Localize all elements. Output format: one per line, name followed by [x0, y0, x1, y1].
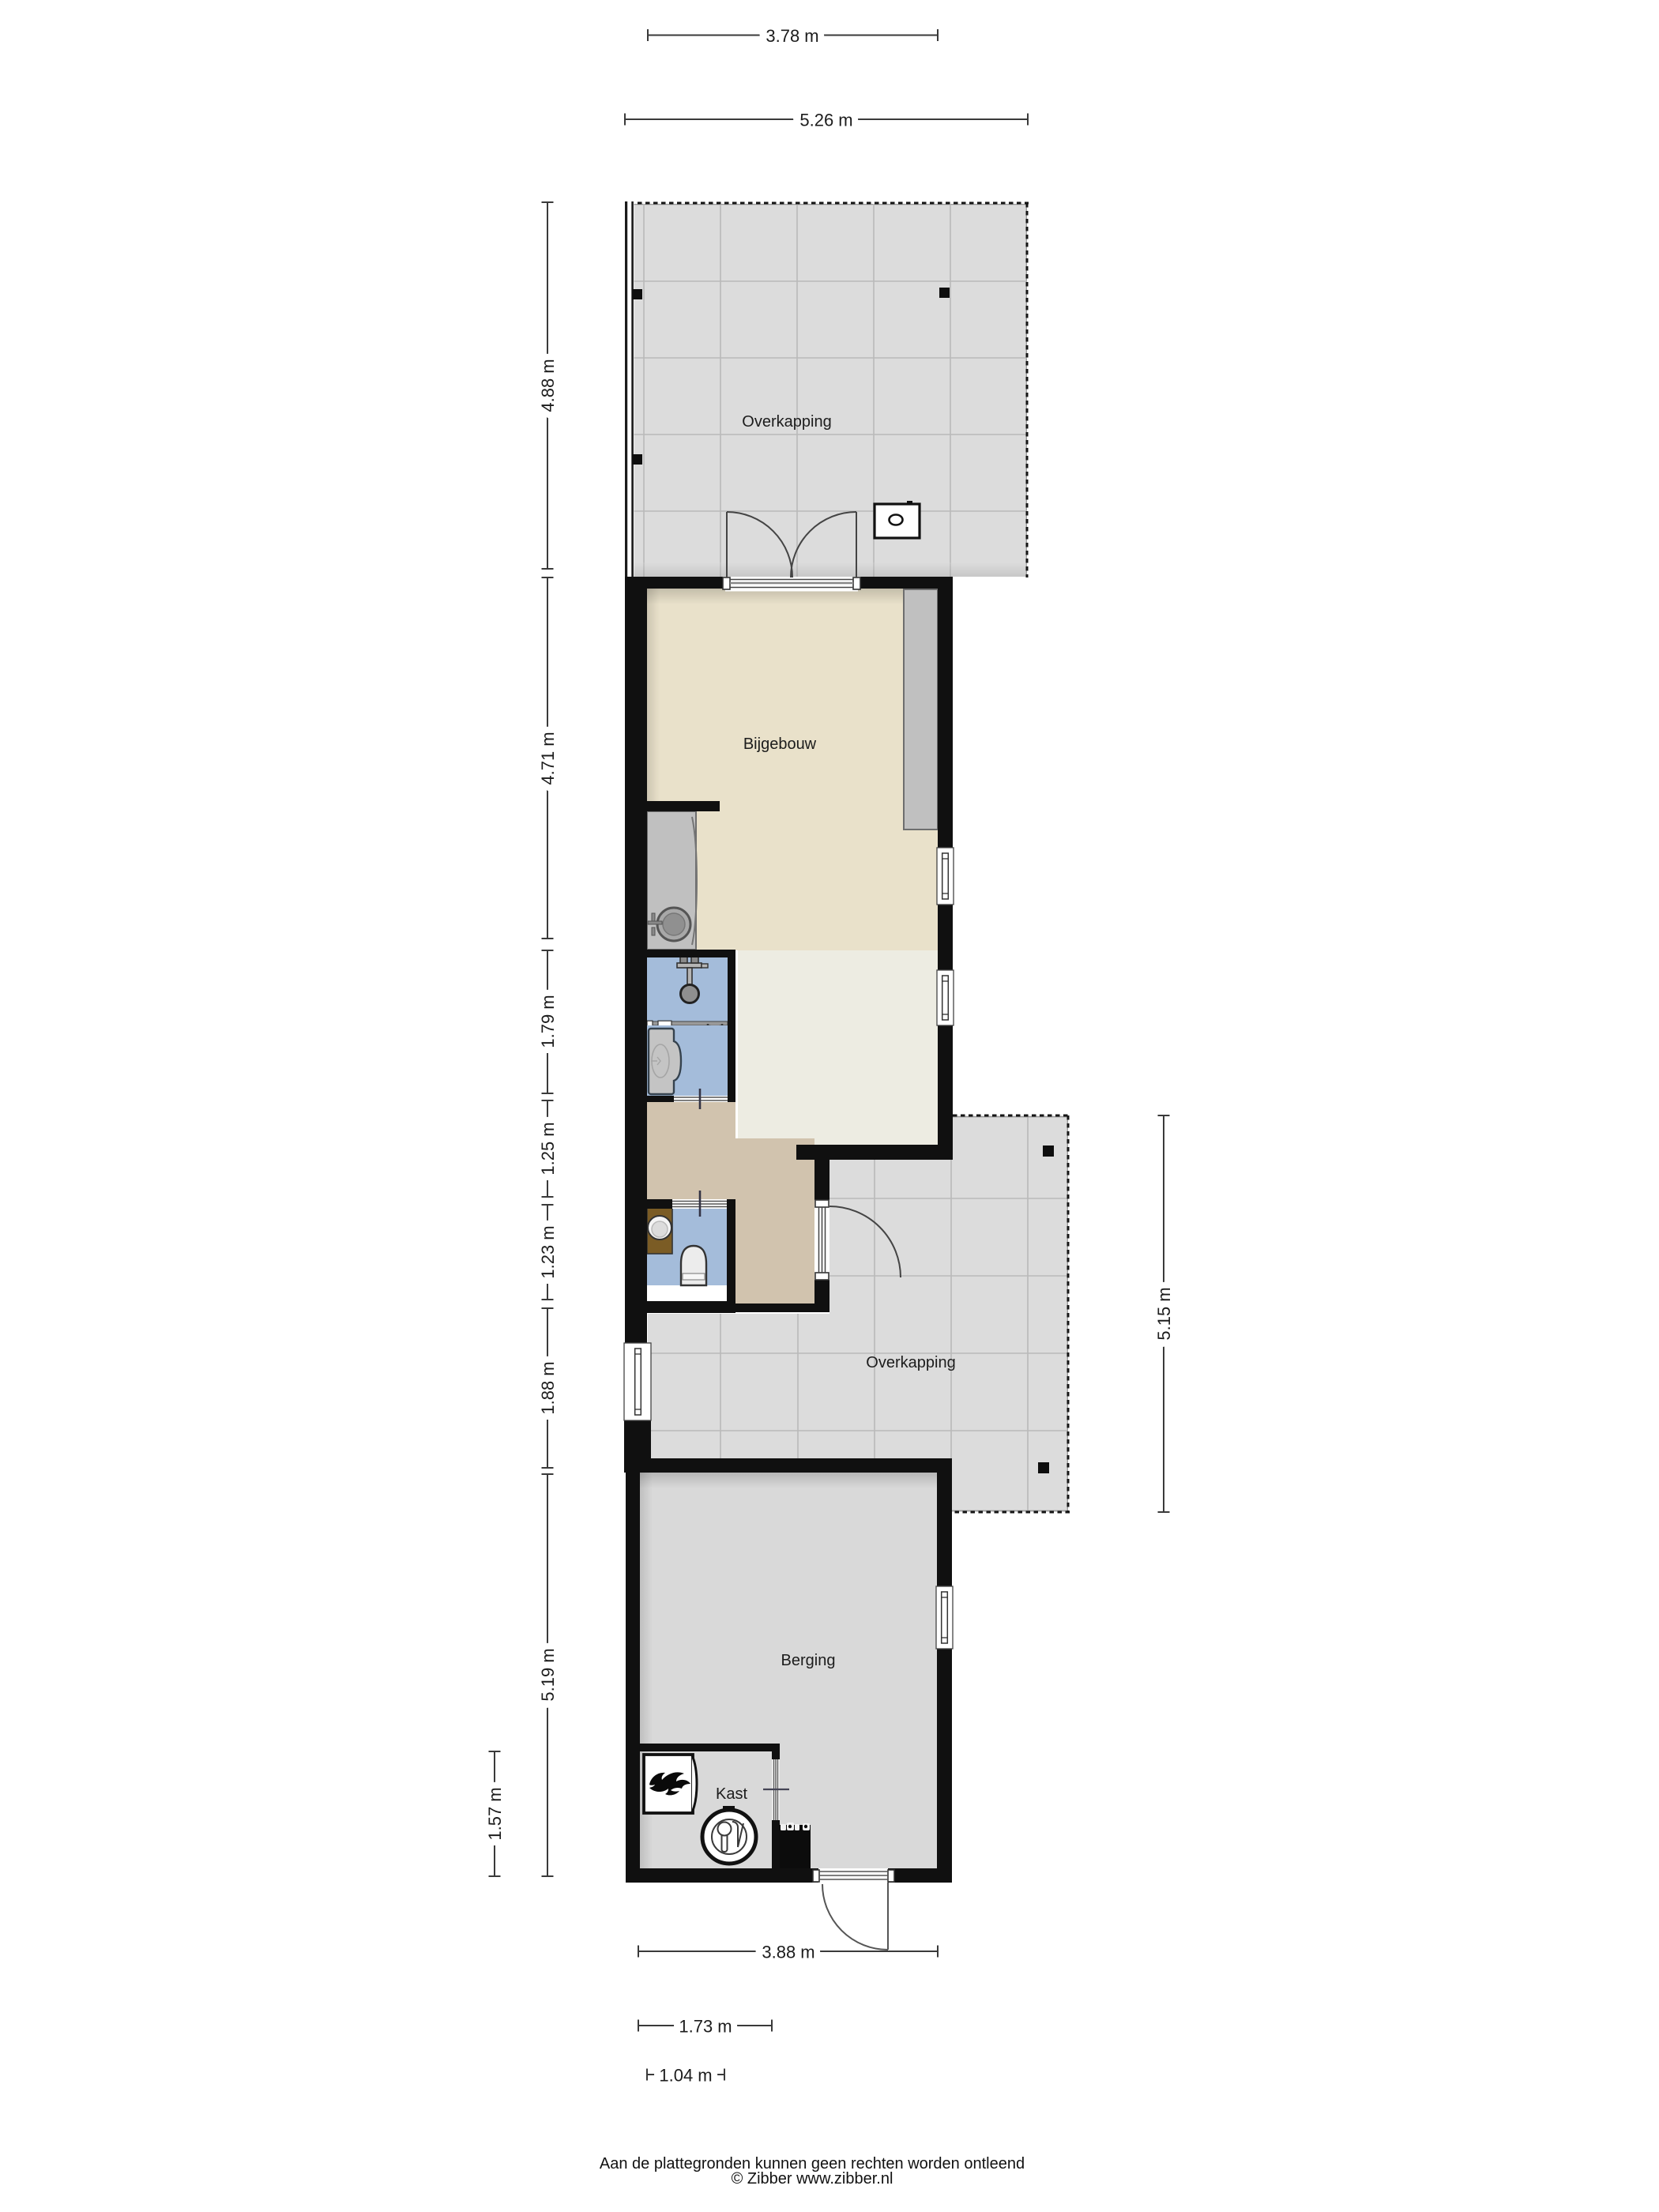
svg-text:Overkapping: Overkapping: [866, 1354, 955, 1371]
svg-text:4.71 m: 4.71 m: [538, 732, 558, 784]
svg-text:5.19 m: 5.19 m: [538, 1648, 558, 1701]
svg-text:1.23 m: 1.23 m: [538, 1225, 558, 1278]
svg-text:1.73 m: 1.73 m: [679, 2017, 732, 2037]
svg-text:5.26 m: 5.26 m: [799, 111, 852, 130]
svg-text:1.04 m: 1.04 m: [659, 2066, 712, 2086]
svg-text:1.25 m: 1.25 m: [538, 1122, 558, 1175]
svg-text:1.79 m: 1.79 m: [538, 995, 558, 1048]
svg-text:Bijgebouw: Bijgebouw: [743, 735, 817, 753]
svg-text:Kast: Kast: [716, 1785, 747, 1803]
svg-text:3.88 m: 3.88 m: [762, 1943, 814, 1962]
svg-text:3.78 m: 3.78 m: [766, 26, 818, 46]
svg-text:© Zibber www.zibber.nl: © Zibber www.zibber.nl: [732, 2170, 893, 2188]
svg-text:4.88 m: 4.88 m: [538, 359, 558, 412]
svg-text:1.57 m: 1.57 m: [485, 1787, 505, 1840]
svg-text:Overkapping: Overkapping: [742, 413, 831, 431]
svg-text:5.15 m: 5.15 m: [1154, 1287, 1174, 1340]
svg-text:Berging: Berging: [781, 1652, 836, 1669]
svg-text:1.88 m: 1.88 m: [538, 1361, 558, 1414]
